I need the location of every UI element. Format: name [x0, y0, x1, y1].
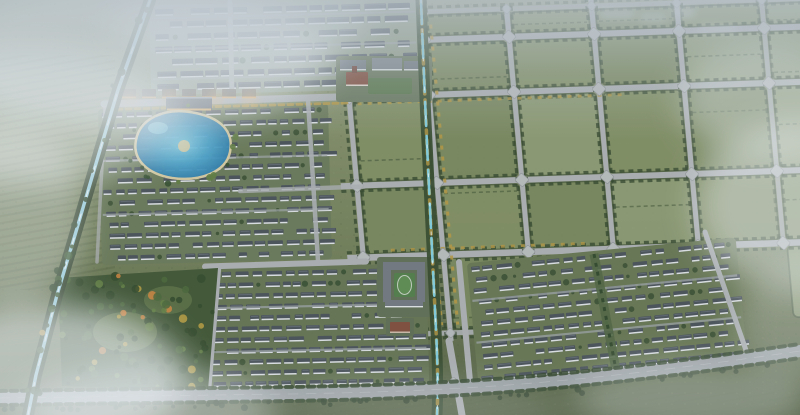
aerial-master-plan-rendering	[0, 0, 800, 415]
rendering-canvas	[0, 0, 800, 415]
atmosphere-veil	[0, 0, 800, 415]
